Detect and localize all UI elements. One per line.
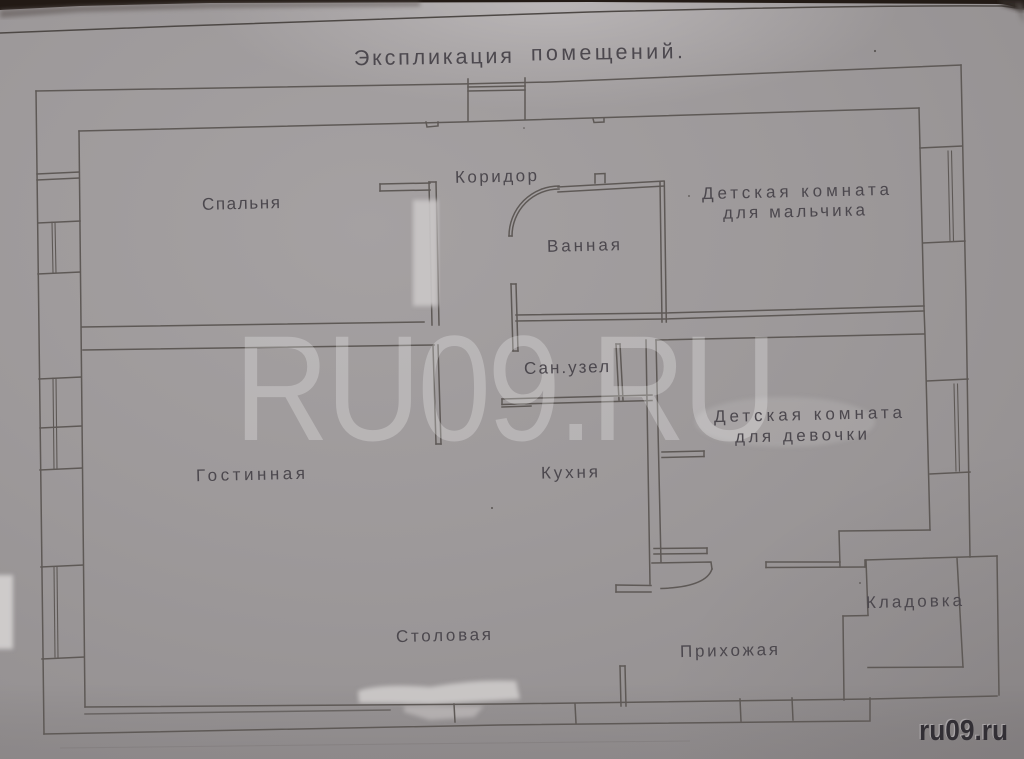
svg-text:Коридор: Коридор	[455, 166, 537, 187]
svg-text:RU09.RU: RU09.RU	[234, 304, 774, 472]
svg-text:Экспликация: Экспликация	[354, 44, 512, 70]
svg-text:Спальня: Спальня	[202, 193, 280, 214]
svg-text:для девочки: для девочки	[735, 425, 867, 447]
svg-text:ru09.ru: ru09.ru	[919, 715, 1008, 747]
svg-text:Кухня: Кухня	[541, 462, 598, 482]
svg-text:Гостинная: Гостинная	[196, 464, 305, 485]
